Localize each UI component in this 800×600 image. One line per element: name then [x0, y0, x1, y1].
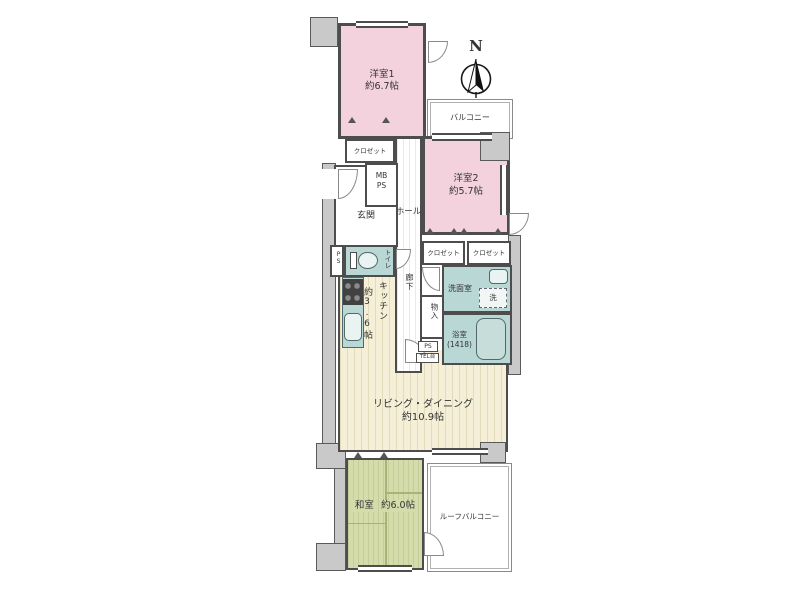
sliding-door-mark: [460, 228, 468, 234]
tatami-line-h-right: [385, 492, 422, 494]
toilet-label: トイレ: [382, 249, 392, 273]
closet-label: クロゼット: [427, 249, 460, 257]
floor-plan-screenshot: リビング・ダイニング 約10.9帖 キッチン 約3.6帖 ホール 廊下 玄関 洋…: [0, 0, 800, 600]
kitchen-sink-icon: [344, 313, 362, 341]
western1-label: 洋室1 約6.7帖: [365, 69, 399, 94]
wall-band-left-lower: [334, 467, 346, 549]
sliding-door-mark: [382, 117, 390, 123]
corridor-label: 廊下: [404, 273, 415, 307]
vanity-sink-icon: [489, 269, 508, 284]
ps-left-label: PS: [335, 251, 342, 273]
compass-north-label: N: [456, 37, 496, 57]
window-japanese-bottom: [358, 565, 412, 572]
tatami-line-h-left: [348, 523, 385, 525]
closet-western2-a: クロゼット: [422, 241, 465, 265]
room-japanese: 和室 約6.0帖: [346, 458, 424, 570]
ps-lower-label: PS: [424, 343, 431, 351]
washroom-label: 洗面室: [448, 284, 472, 294]
bathroom-label: 浴室 (1418): [447, 330, 472, 350]
room-area: 約6.0帖: [379, 500, 417, 512]
room-area: 約5.7帖: [449, 186, 483, 198]
entrance-label: 玄関: [336, 211, 396, 223]
window-western1-top: [356, 21, 408, 28]
pillar-top-left: [310, 17, 338, 47]
kitchen-name-label: キッチン: [376, 281, 389, 347]
sliding-door-mark: [494, 228, 502, 234]
closet-western1: クロゼット: [345, 139, 395, 163]
room-washroom: 洗面室 洗: [442, 265, 512, 313]
room-area: 約10.9帖: [340, 411, 506, 424]
balcony-label: バルコニー: [428, 113, 512, 123]
tatami-line-v: [385, 460, 387, 568]
window-living-roofbalcony: [432, 448, 488, 455]
room-toilet: トイレ: [344, 245, 395, 277]
pipe-space-lower: PS: [418, 341, 438, 352]
washroom-door-arc: [422, 267, 440, 291]
toilet-tank-icon: [350, 252, 357, 269]
roof-balcony-label: ルーフバルコニー: [428, 512, 511, 522]
floor-plan: リビング・ダイニング 約10.9帖 キッチン 約3.6帖 ホール 廊下 玄関 洋…: [310, 15, 532, 587]
mb-label: MB: [367, 171, 396, 181]
room-living-dining: リビング・ダイニング 約10.9帖: [338, 350, 508, 452]
bathtub-icon: [476, 318, 506, 360]
japanese-room-label: 和室 約6.0帖: [348, 500, 422, 512]
sliding-door-mark: [450, 228, 458, 234]
room-bathroom: 浴室 (1418): [442, 313, 512, 365]
compass: N: [456, 37, 496, 99]
sliding-door-mark: [380, 452, 388, 458]
window-western2-right: [500, 165, 508, 215]
room-name: 浴室: [447, 330, 472, 340]
room-area: 約6.7帖: [365, 81, 399, 93]
room-name: リビング・ダイニング: [340, 398, 506, 411]
room-size: (1418): [447, 340, 472, 350]
western2-door-arc: [509, 213, 529, 235]
toilet-bowl-icon: [358, 252, 378, 269]
western2-label: 洋室2 約5.7帖: [449, 173, 483, 198]
compass-needle-icon: [456, 57, 496, 101]
closet-label: クロゼット: [354, 147, 387, 155]
pillar-bottom-left-2: [316, 543, 346, 571]
room-name: 洋室2: [449, 173, 483, 185]
stove-icon: [343, 279, 363, 305]
storage-label: 物入: [429, 303, 440, 335]
tel-stand: TEL台: [416, 353, 439, 363]
room-name: 洋室1: [365, 69, 399, 81]
closet-label: クロゼット: [473, 249, 506, 257]
entrance-door-gap: [322, 169, 338, 199]
living-dining-label: リビング・ダイニング 約10.9帖: [340, 398, 506, 424]
room-kitchen: キッチン 約3.6帖: [338, 275, 395, 352]
washer-box: 洗: [479, 288, 507, 308]
pipe-space-left: PS: [330, 245, 344, 277]
room-name: 和室: [353, 500, 376, 512]
closet-western2-b: クロゼット: [467, 241, 511, 265]
washer-label: 洗: [489, 293, 497, 303]
tel-stand-label: TEL台: [420, 354, 435, 361]
sliding-door-mark: [426, 228, 434, 234]
sliding-door-mark: [354, 452, 362, 458]
sliding-door-mark: [348, 117, 356, 123]
storage-mono-ire: 物入: [420, 295, 444, 339]
western1-door-arc: [428, 41, 448, 63]
window-balcony-western2: [432, 133, 492, 141]
ps-label: PS: [367, 181, 396, 191]
meter-box-pipe-space: MB PS: [365, 163, 398, 207]
